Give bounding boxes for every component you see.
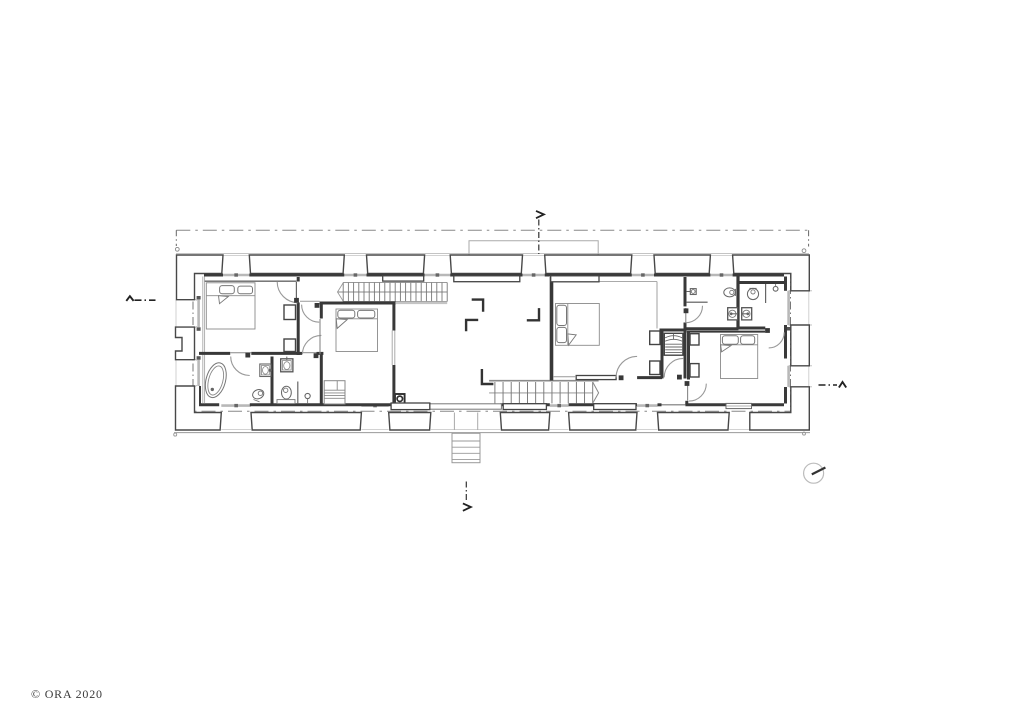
svg-text:© ORA 2020: © ORA 2020	[31, 687, 103, 701]
